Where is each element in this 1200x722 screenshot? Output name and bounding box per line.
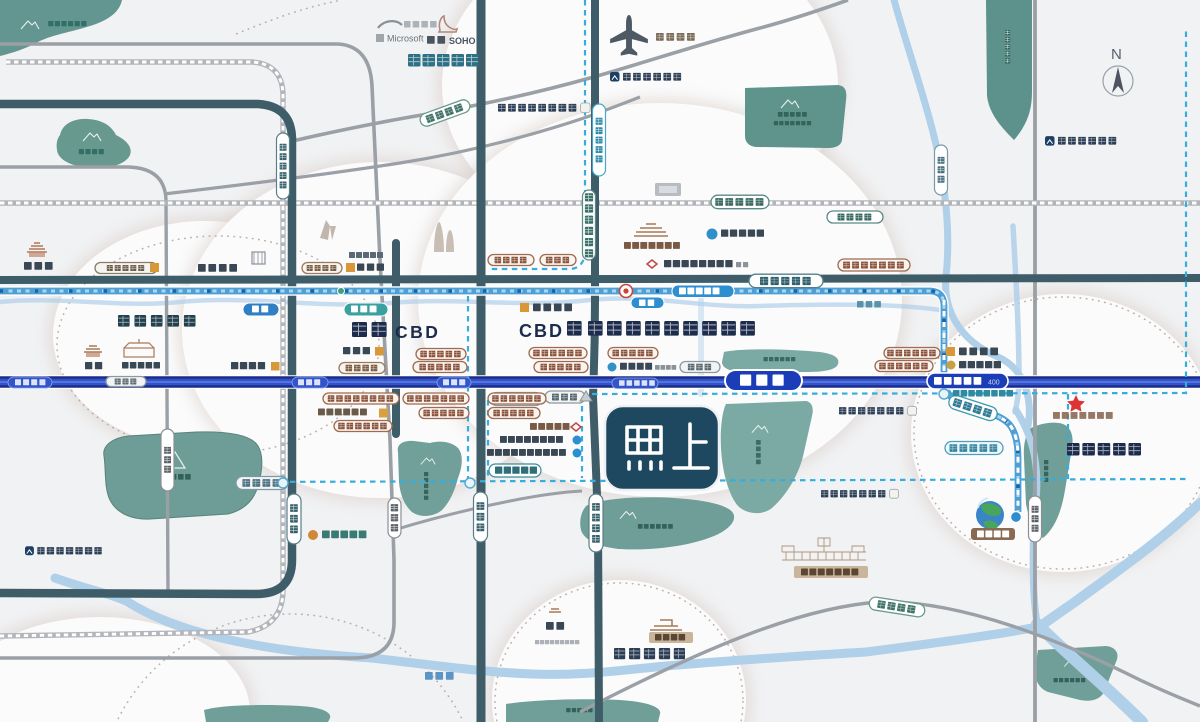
svg-text:400: 400 bbox=[988, 380, 1000, 387]
svg-text:CBD: CBD bbox=[519, 321, 564, 341]
svg-text:CBD: CBD bbox=[395, 322, 440, 342]
svg-text:Microsoft: Microsoft bbox=[387, 34, 424, 44]
svg-text:SOHO: SOHO bbox=[449, 36, 476, 46]
svg-text:N: N bbox=[1111, 46, 1122, 63]
